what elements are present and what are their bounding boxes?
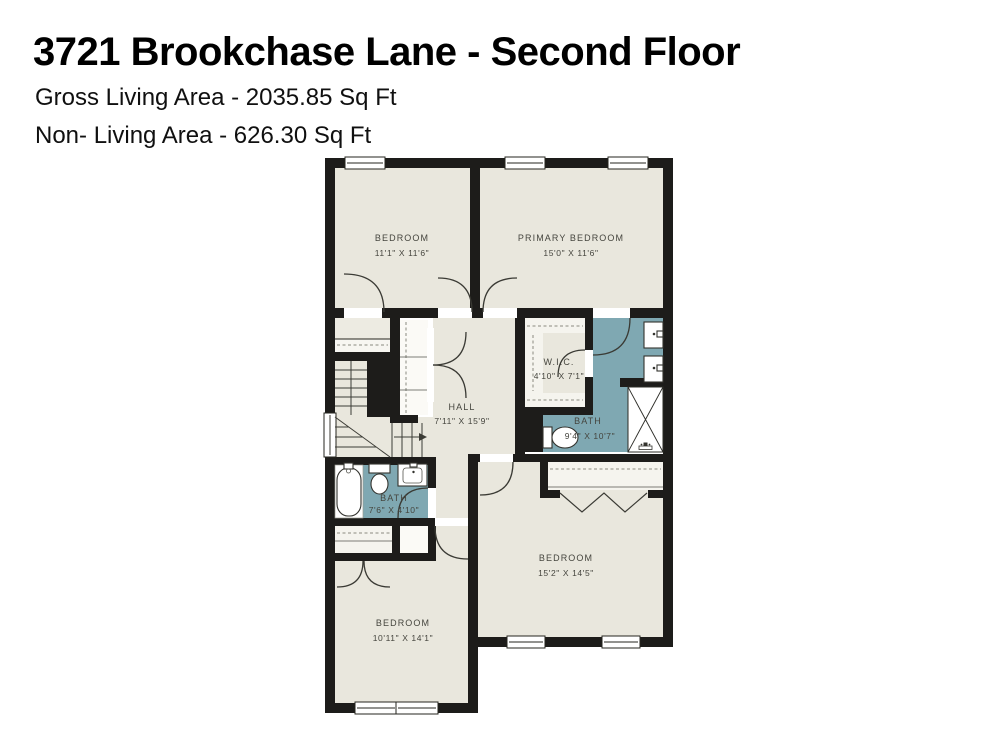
window <box>355 702 397 714</box>
window <box>602 636 640 648</box>
room-dims: 15'0" X 11'6" <box>543 248 598 258</box>
sink <box>398 463 427 486</box>
room-label: BATH <box>574 416 602 426</box>
room-dims: 10'11" X 14'1" <box>373 633 434 643</box>
room-label: BEDROOM <box>539 553 593 563</box>
room-dims: 7'11" X 15'9" <box>434 416 489 426</box>
window <box>345 157 385 169</box>
room-dims: 15'2" X 14'5" <box>538 568 594 578</box>
window <box>396 702 438 714</box>
bathtub <box>335 463 363 518</box>
room-label: BEDROOM <box>376 618 430 628</box>
room-dims: 7'6" X 4'10" <box>369 505 420 515</box>
room-label: PRIMARY BEDROOM <box>518 233 624 243</box>
window <box>505 157 545 169</box>
room-label: BATH <box>380 493 408 503</box>
room-dims: 9'4" X 10'7" <box>565 431 616 441</box>
toilet <box>369 464 390 494</box>
vanity-sink <box>644 356 663 382</box>
window <box>507 636 545 648</box>
window <box>608 157 648 169</box>
shower <box>628 387 663 452</box>
window <box>324 413 336 457</box>
room-dims: 11'1" X 11'6" <box>375 248 430 258</box>
floorplan-page: 3721 Brookchase Lane - Second Floor Gros… <box>0 0 1000 750</box>
primary-bedroom-floor <box>480 168 663 318</box>
room-label: HALL <box>449 402 476 412</box>
bedroom-top-left-floor <box>335 168 470 318</box>
room-dims: 4'10" X 7'1" <box>534 371 585 381</box>
room-label: W.I.C. <box>543 357 574 367</box>
floorplan-drawing: BEDROOM 11'1" X 11'6" PRIMARY BEDROOM 15… <box>0 0 1000 750</box>
room-label: BEDROOM <box>375 233 429 243</box>
vanity-sink <box>644 322 663 348</box>
